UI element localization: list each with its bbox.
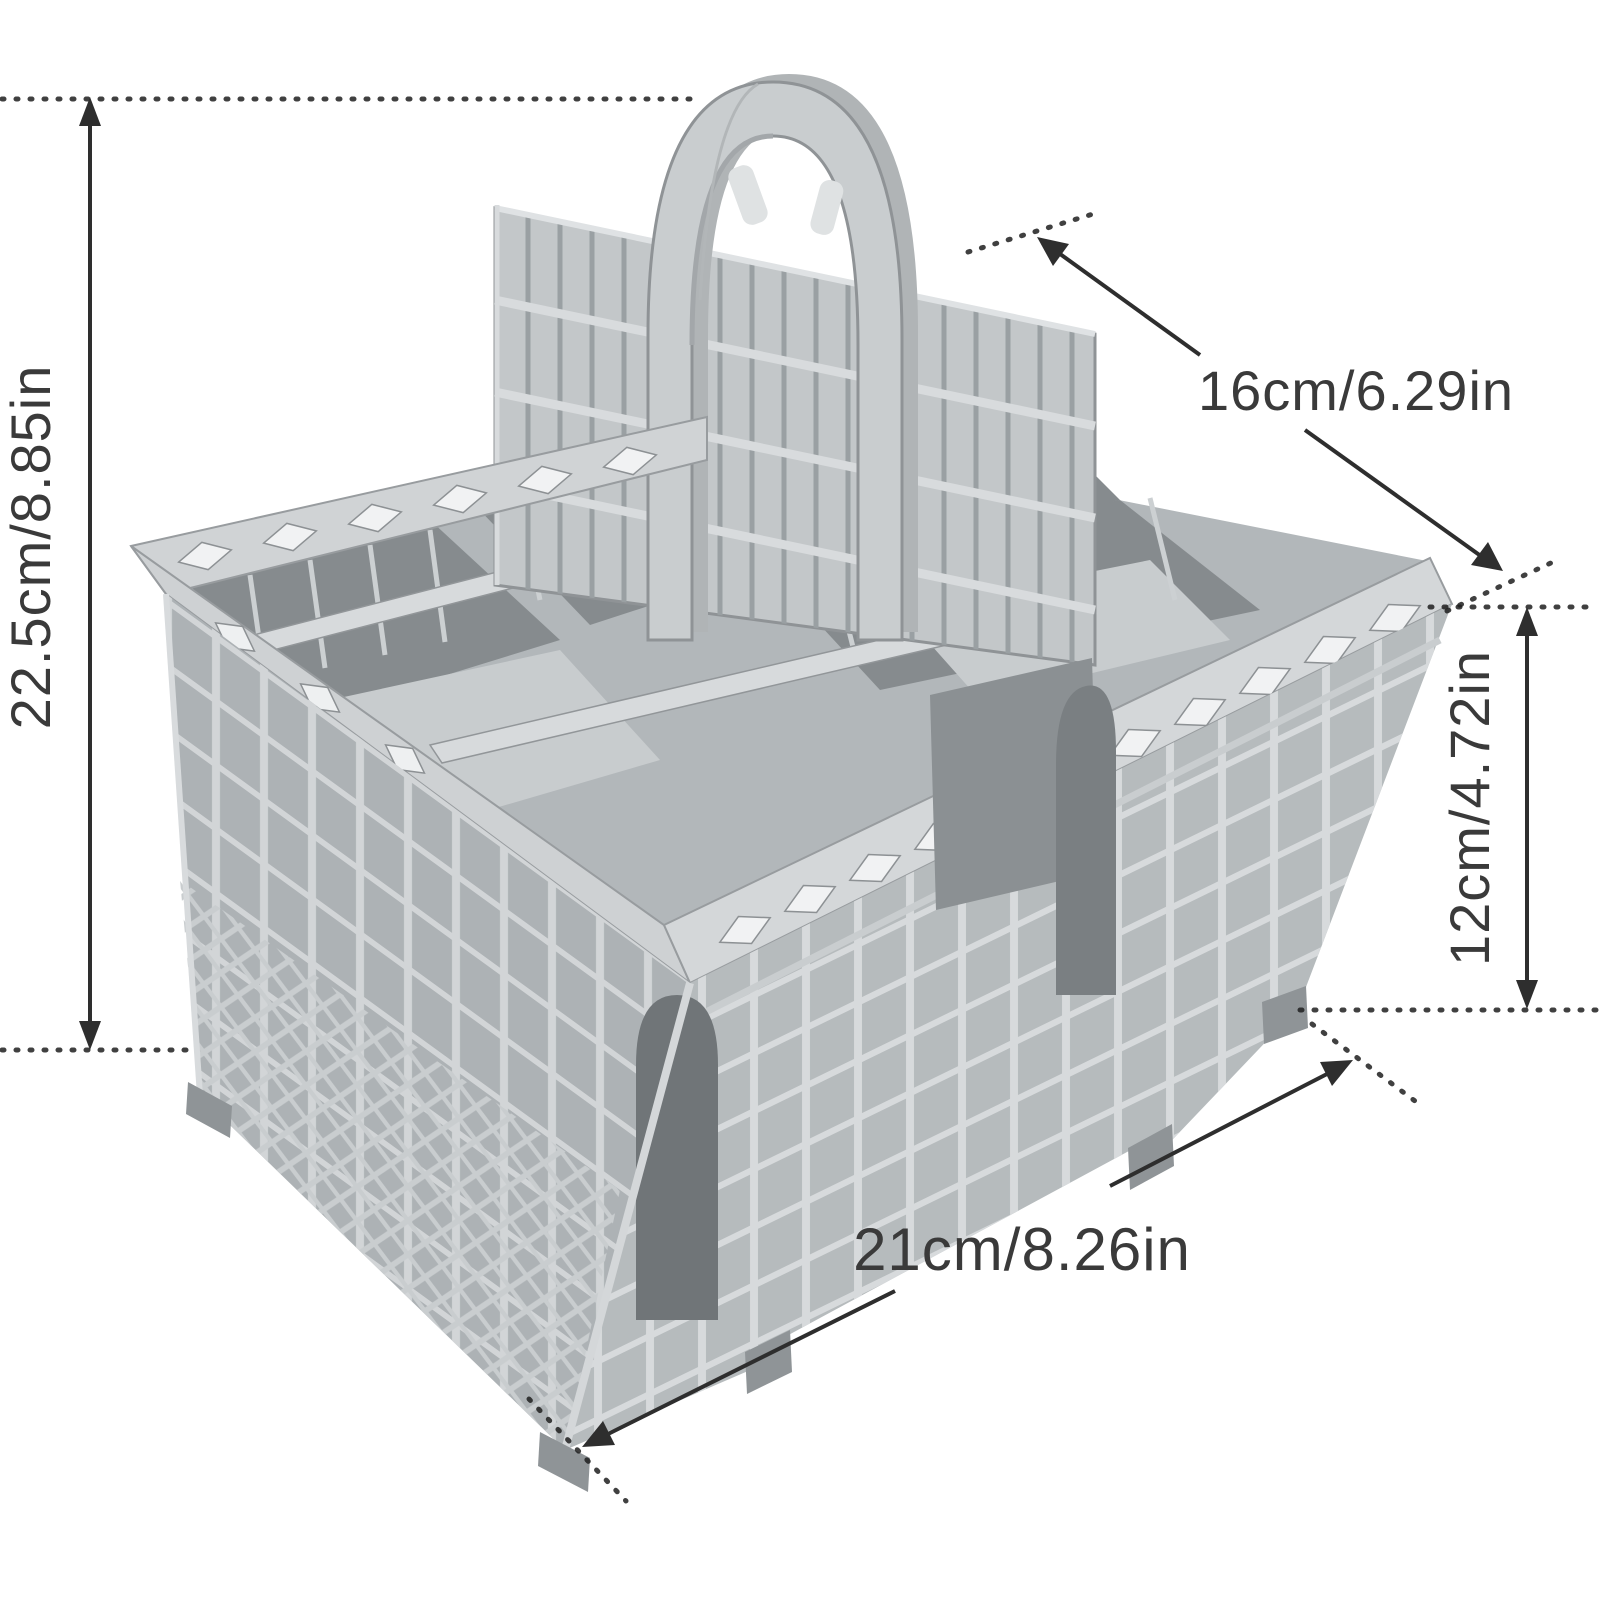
arrowhead-down-icon xyxy=(1516,980,1538,1009)
arrowhead-upleft-icon xyxy=(1037,237,1069,266)
dimension-label-top-width: 16cm/6.29in xyxy=(1198,359,1514,422)
handle-cutout xyxy=(726,162,771,227)
handle-cutout xyxy=(808,178,845,237)
right-arch-cutout xyxy=(1056,686,1116,995)
dimension-label-basket-height: 12cm/4.72in xyxy=(1438,650,1501,966)
arrowhead-downright-icon xyxy=(1471,542,1503,571)
cutlery-basket-illustration xyxy=(131,74,1452,1492)
arrowhead-up-icon xyxy=(79,97,101,126)
dimension-label-overall-height: 22.5cm/8.85in xyxy=(0,365,62,730)
basket-back-fence xyxy=(495,205,1095,665)
dimension-label-length: 21cm/8.26in xyxy=(853,1216,1191,1283)
fence-slats xyxy=(495,208,1095,665)
arrowhead-down-icon xyxy=(79,1021,101,1050)
product-dimension-diagram: 22.5cm/8.85in 16cm/6.29in 12cm/4.72in 21… xyxy=(0,0,1600,1600)
leader-line-upper xyxy=(968,214,1093,252)
diagram-canvas: 22.5cm/8.85in 16cm/6.29in 12cm/4.72in 21… xyxy=(0,0,1600,1600)
arrowhead-up-icon xyxy=(1516,607,1538,636)
